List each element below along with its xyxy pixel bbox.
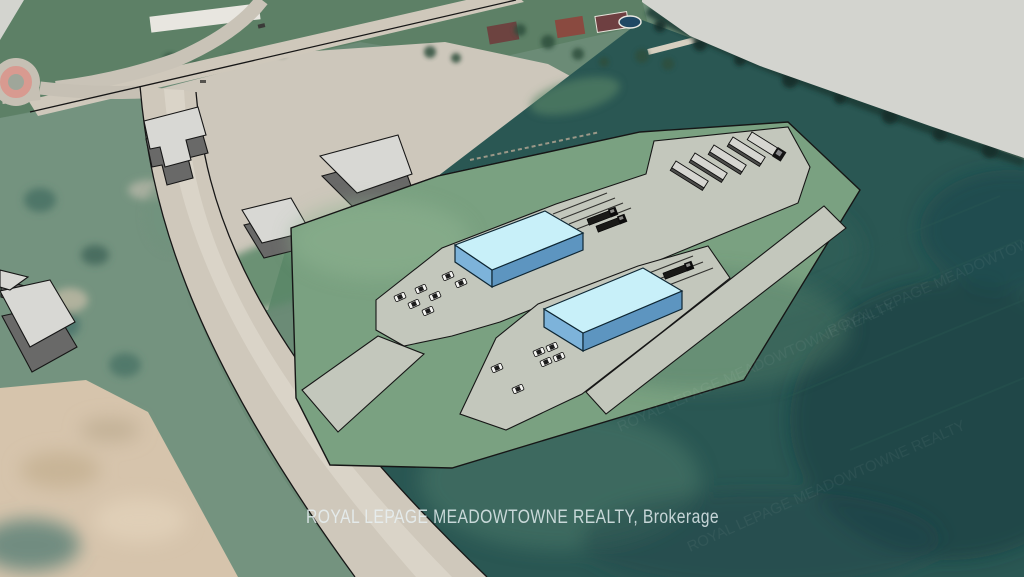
farm-pond <box>619 16 641 28</box>
aerial-site-plan-svg: ROYAL LEPAGE MEADOWTOWNE REALTY ROYAL LE… <box>0 0 1024 577</box>
parked-car-yard <box>200 80 206 83</box>
roundabout-ring <box>4 70 28 94</box>
watermark-text: ROYAL LEPAGE MEADOWTOWNE REALTY, Brokera… <box>306 507 719 528</box>
listing-rendering: ROYAL LEPAGE MEADOWTOWNE REALTY ROYAL LE… <box>0 0 1024 577</box>
